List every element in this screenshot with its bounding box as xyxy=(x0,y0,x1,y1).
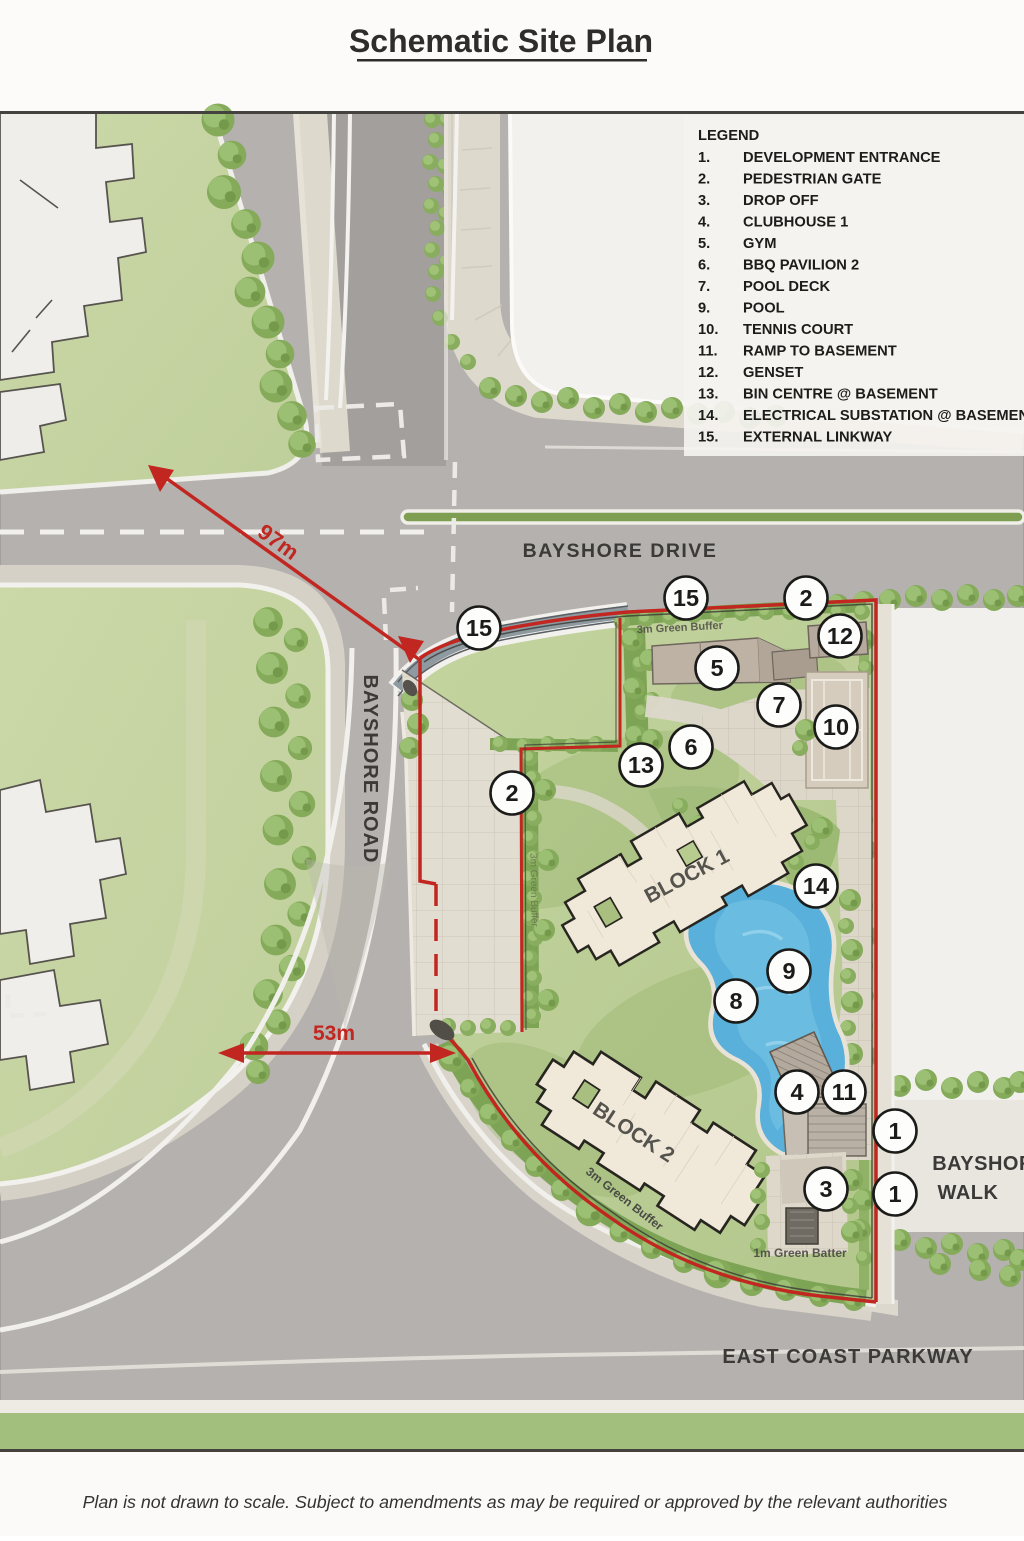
svg-text:4: 4 xyxy=(790,1079,803,1105)
svg-text:GYM: GYM xyxy=(743,236,776,252)
svg-text:TENNIS COURT: TENNIS COURT xyxy=(743,322,853,338)
svg-text:EXTERNAL LINKWAY: EXTERNAL LINKWAY xyxy=(743,430,893,446)
svg-text:WALK: WALK xyxy=(938,1182,999,1204)
svg-text:53m: 53m xyxy=(313,1022,355,1045)
svg-text:14.: 14. xyxy=(698,408,718,424)
svg-text:1: 1 xyxy=(888,1181,901,1207)
svg-text:1: 1 xyxy=(888,1118,901,1144)
svg-text:14: 14 xyxy=(803,873,829,899)
svg-text:GENSET: GENSET xyxy=(743,365,803,381)
svg-text:15.: 15. xyxy=(698,430,718,446)
svg-text:7: 7 xyxy=(772,692,785,718)
svg-text:3m Green Buffer: 3m Green Buffer xyxy=(527,853,539,928)
svg-text:13.: 13. xyxy=(698,387,718,403)
svg-text:RAMP TO BASEMENT: RAMP TO BASEMENT xyxy=(743,344,897,360)
svg-text:Plan is not drawn to scale. Su: Plan is not drawn to scale. Subject to a… xyxy=(83,1492,948,1512)
svg-text:2: 2 xyxy=(505,780,518,806)
svg-text:DROP OFF: DROP OFF xyxy=(743,193,819,209)
svg-text:5.: 5. xyxy=(698,236,710,252)
svg-text:2.: 2. xyxy=(698,172,710,188)
svg-text:15: 15 xyxy=(673,585,699,611)
svg-text:12.: 12. xyxy=(698,365,718,381)
svg-text:4.: 4. xyxy=(698,215,710,231)
svg-text:POOL: POOL xyxy=(743,301,785,317)
svg-text:DEVELOPMENT ENTRANCE: DEVELOPMENT ENTRANCE xyxy=(743,150,941,166)
svg-text:2: 2 xyxy=(799,585,812,611)
svg-text:BAYSHORE ROAD: BAYSHORE ROAD xyxy=(359,675,381,864)
svg-text:PEDESTRIAN GATE: PEDESTRIAN GATE xyxy=(743,172,882,188)
svg-text:12: 12 xyxy=(827,623,853,649)
svg-text:10.: 10. xyxy=(698,322,718,338)
svg-text:1m Green Batter: 1m Green Batter xyxy=(753,1246,847,1260)
svg-text:1.: 1. xyxy=(698,150,710,166)
svg-text:BBQ PAVILION 2: BBQ PAVILION 2 xyxy=(743,258,859,274)
svg-text:EAST COAST PARKWAY: EAST COAST PARKWAY xyxy=(722,1346,973,1368)
svg-text:3.: 3. xyxy=(698,193,710,209)
svg-text:9: 9 xyxy=(782,958,795,984)
svg-text:BAYSHORE: BAYSHORE xyxy=(932,1153,1024,1175)
svg-text:11.: 11. xyxy=(698,344,718,360)
svg-text:BAYSHORE DRIVE: BAYSHORE DRIVE xyxy=(523,540,718,562)
svg-text:13: 13 xyxy=(628,752,654,778)
svg-text:10: 10 xyxy=(823,714,849,740)
svg-text:BIN CENTRE @ BASEMENT: BIN CENTRE @ BASEMENT xyxy=(743,387,938,403)
svg-text:6.: 6. xyxy=(698,258,710,274)
svg-text:9.: 9. xyxy=(698,301,710,317)
svg-text:LEGEND: LEGEND xyxy=(698,128,759,144)
svg-text:Schematic Site Plan: Schematic Site Plan xyxy=(349,23,653,59)
svg-text:5: 5 xyxy=(710,655,723,681)
svg-text:ELECTRICAL SUBSTATION @ BASEME: ELECTRICAL SUBSTATION @ BASEMENT xyxy=(743,408,1024,424)
svg-text:6: 6 xyxy=(684,734,697,760)
svg-text:CLUBHOUSE 1: CLUBHOUSE 1 xyxy=(743,215,848,231)
svg-text:3: 3 xyxy=(819,1176,832,1202)
svg-text:7.: 7. xyxy=(698,279,710,295)
svg-text:15: 15 xyxy=(466,615,492,641)
svg-text:11: 11 xyxy=(832,1079,857,1105)
svg-text:8: 8 xyxy=(729,988,742,1014)
svg-text:POOL DECK: POOL DECK xyxy=(743,279,830,295)
